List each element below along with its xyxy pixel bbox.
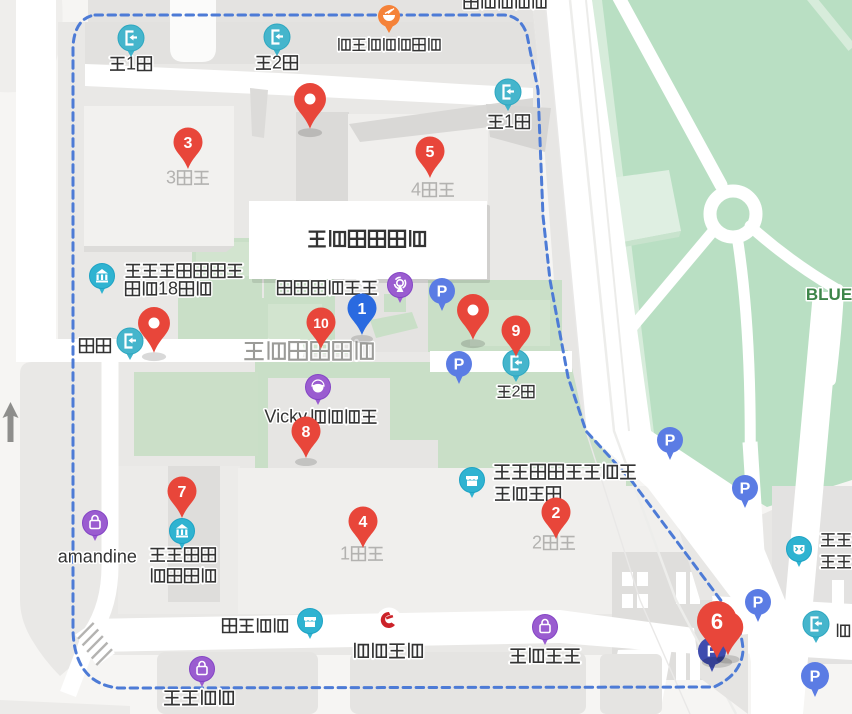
svg-text:P: P: [454, 357, 465, 374]
svg-text:2: 2: [512, 384, 521, 401]
svg-text:BLUE: BLUE: [806, 285, 852, 304]
svg-text:7: 7: [178, 484, 187, 501]
svg-text:10: 10: [313, 315, 329, 331]
svg-text:8: 8: [302, 424, 311, 441]
svg-text:P: P: [810, 669, 821, 686]
svg-text:3: 3: [166, 168, 176, 188]
svg-text:P: P: [437, 284, 448, 301]
svg-text:2: 2: [532, 533, 542, 553]
svg-text:4: 4: [359, 514, 368, 531]
svg-text:P: P: [753, 595, 764, 612]
svg-text:P: P: [740, 481, 751, 498]
svg-text:1: 1: [340, 544, 350, 564]
svg-text:1: 1: [504, 112, 514, 132]
svg-text:9: 9: [512, 323, 521, 340]
svg-text:P: P: [665, 433, 676, 450]
svg-text:5: 5: [426, 144, 435, 161]
svg-text:4: 4: [411, 180, 421, 200]
svg-text:1: 1: [358, 301, 367, 318]
svg-text:6: 6: [711, 609, 723, 634]
svg-text:amandine: amandine: [58, 547, 137, 567]
svg-text:3: 3: [184, 135, 193, 152]
svg-text:2: 2: [552, 505, 561, 522]
svg-text:18: 18: [158, 279, 178, 299]
